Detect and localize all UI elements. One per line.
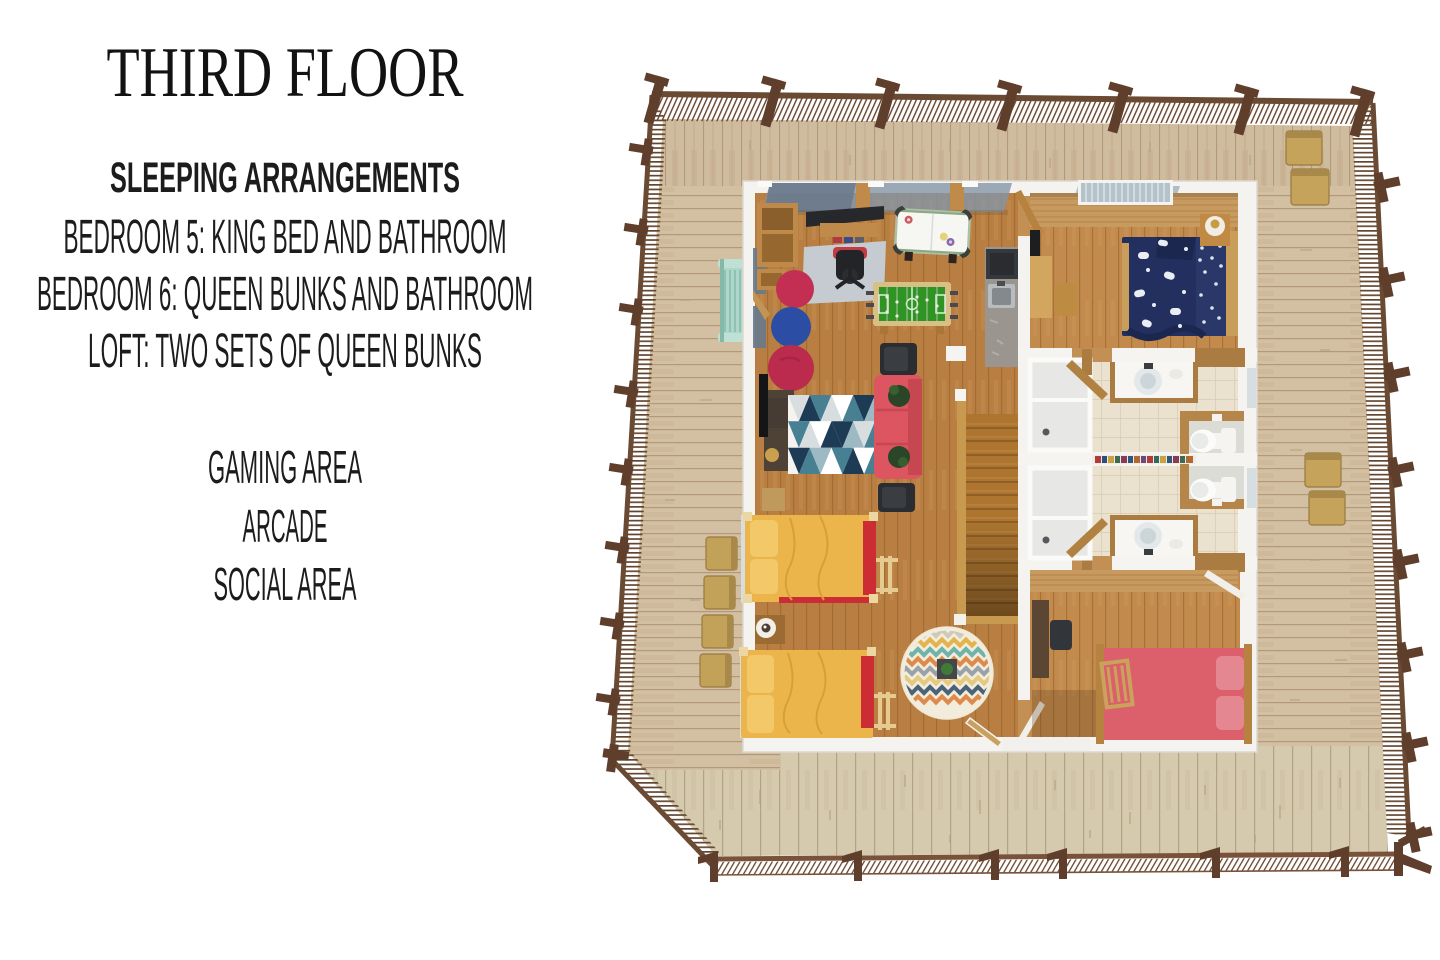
svg-text:SOCIAL AREA: SOCIAL AREA xyxy=(214,558,357,610)
svg-text:THIRD FLOOR: THIRD FLOOR xyxy=(107,34,464,112)
svg-text:ARCADE: ARCADE xyxy=(243,500,328,552)
svg-text:LOFT: TWO SETS OF QUEEN BUNKS: LOFT: TWO SETS OF QUEEN BUNKS xyxy=(88,325,482,378)
svg-text:BEDROOM 6: QUEEN BUNKS AND BAT: BEDROOM 6: QUEEN BUNKS AND BATHROOM xyxy=(37,268,533,321)
svg-text:GAMING AREA: GAMING AREA xyxy=(208,441,362,493)
svg-text:SLEEPING ARRANGEMENTS: SLEEPING ARRANGEMENTS xyxy=(110,154,460,202)
svg-text:BEDROOM 5: KING BED AND BATHRO: BEDROOM 5: KING BED AND BATHROOM xyxy=(64,211,507,264)
